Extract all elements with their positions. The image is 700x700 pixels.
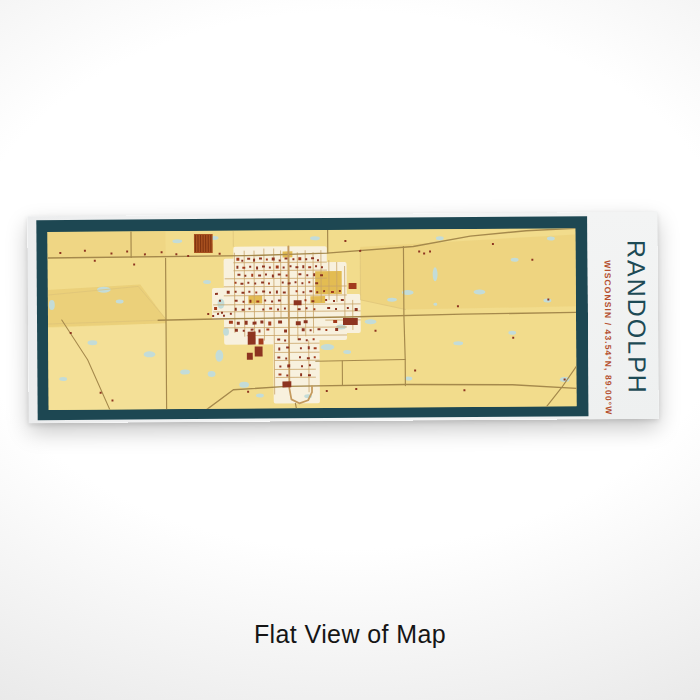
map-title: RANDOLPH <box>621 240 651 395</box>
map-subtitle: WISCONSIN / 43.54°N, 89.00°W <box>603 260 614 415</box>
orchard-layer <box>194 234 213 253</box>
caption: Flat View of Map <box>0 620 700 649</box>
label-strip: RANDOLPH WISCONSIN / 43.54°N, 89.00°W <box>587 212 658 419</box>
backdrop: RANDOLPH WISCONSIN / 43.54°N, 89.00°W Fl… <box>0 0 700 700</box>
map-print-card: RANDOLPH WISCONSIN / 43.54°N, 89.00°W <box>27 212 658 423</box>
map-frame <box>36 216 588 420</box>
map-canvas <box>47 228 576 410</box>
